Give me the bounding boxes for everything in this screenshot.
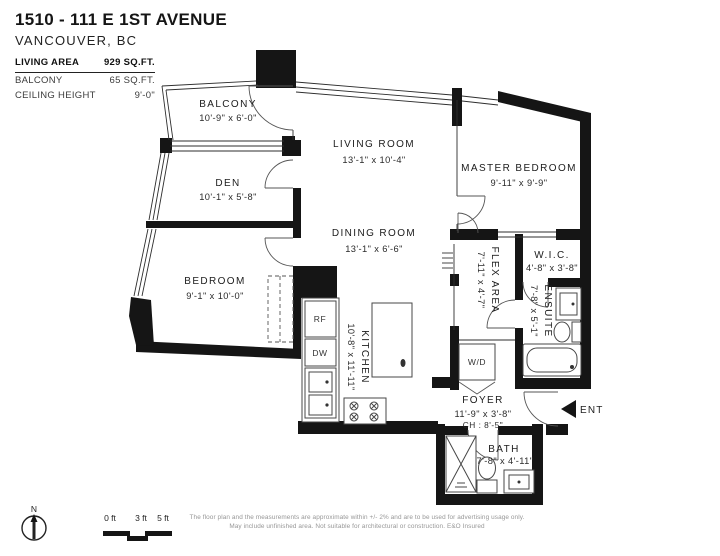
bath-toilet-tank-icon bbox=[477, 480, 497, 493]
entry-door bbox=[524, 392, 558, 426]
room-label-living: LIVING ROOM bbox=[333, 139, 415, 150]
scale-tick-3: 3 ft bbox=[135, 513, 147, 523]
window-master-top bbox=[462, 96, 498, 105]
wall-foyer-bath-right bbox=[498, 426, 534, 435]
room-dims-kitchen: 10'-8" x 11'-11" bbox=[346, 323, 356, 390]
room-label-kitchen: KITCHEN bbox=[359, 330, 370, 384]
wall-dining-kitchen-corner bbox=[301, 266, 337, 298]
room-dims-balcony: 10'-9" x 6'-0" bbox=[199, 113, 257, 123]
room-dims-bedroom: 9'-1" x 10'-0" bbox=[186, 291, 244, 301]
room-dims-wic: 4'-8" x 3'-8" bbox=[526, 263, 578, 273]
north-compass: N bbox=[22, 504, 46, 540]
scale-tick-5: 5 ft bbox=[157, 513, 169, 523]
room-label-master: MASTER BEDROOM bbox=[461, 163, 577, 174]
entry-marker: ENT bbox=[561, 400, 604, 418]
room-label-dining: DINING ROOM bbox=[332, 228, 416, 239]
master-closet-slider bbox=[498, 232, 556, 237]
scale-tick-0: 0 ft bbox=[104, 513, 116, 523]
bedroom-closet bbox=[268, 276, 293, 342]
wall-bedroom-bottom bbox=[136, 341, 301, 359]
wall-flex-ensuite-lower bbox=[515, 328, 523, 389]
wall-bath-bottom bbox=[436, 494, 543, 505]
wall-den-bedroom-divider bbox=[146, 221, 295, 228]
room-label-flex: FLEX AREA bbox=[489, 246, 500, 313]
bedroom-door bbox=[265, 238, 293, 266]
wall-wd-left bbox=[450, 326, 459, 390]
window-den-left bbox=[149, 153, 169, 220]
wall-left-seg3 bbox=[293, 266, 301, 358]
room-label-ensuite: ENSUITE bbox=[542, 284, 553, 337]
room-label-den: DEN bbox=[215, 178, 240, 189]
kitchen-island bbox=[372, 303, 412, 377]
room-label-wic: W.I.C. bbox=[534, 250, 570, 261]
faucet-icon bbox=[325, 380, 328, 383]
wall-flex-block bbox=[450, 274, 459, 286]
wall-right bbox=[580, 113, 591, 389]
wall-bath-left bbox=[436, 424, 445, 505]
window-living-top bbox=[296, 82, 452, 105]
bathtub-icon bbox=[523, 344, 581, 376]
scale-segment bbox=[145, 531, 172, 536]
room-label-bath: BATH bbox=[488, 444, 520, 455]
kitchen-sink-unit bbox=[305, 368, 336, 418]
master-door bbox=[457, 196, 485, 224]
window-den-top bbox=[170, 141, 284, 151]
fridge-label: RF bbox=[314, 314, 327, 324]
faucet-icon bbox=[325, 403, 328, 406]
room-dims-dining: 13'-1" x 6'-6" bbox=[345, 244, 403, 254]
room-dims-flex: 7'-11" x 4'-7" bbox=[476, 252, 486, 309]
wall-flex-ensuite-upper bbox=[515, 234, 523, 300]
wall-sw-corner bbox=[129, 297, 154, 346]
dishwasher-label: DW bbox=[312, 348, 327, 358]
wd-bifold-door bbox=[459, 382, 495, 394]
disclaimer-line-1: The floor plan and the measurements are … bbox=[190, 514, 525, 521]
wall-top-column bbox=[256, 50, 296, 88]
washer-dryer-label: W/D bbox=[468, 357, 486, 367]
floor-plan: BALCONY 10'-9" x 6'-0" DEN 10'-1" x 5'-8… bbox=[0, 0, 720, 556]
ensuite-toilet-icon bbox=[554, 322, 570, 342]
ensuite-toilet-tank-icon bbox=[572, 322, 581, 342]
room-dims-foyer: 11'-9" x 3'-8" bbox=[455, 409, 512, 419]
disclaimer-line-2: May include unfinished area. Not suitabl… bbox=[229, 523, 485, 530]
room-dims-master: 9'-11" x 9'-9" bbox=[491, 178, 548, 188]
room-dims-living: 13'-1" x 10'-4" bbox=[342, 155, 405, 165]
entry-label: ENT bbox=[580, 405, 604, 416]
den-door bbox=[265, 160, 293, 188]
compass-needle-tip-icon bbox=[31, 514, 38, 522]
stove-icon bbox=[344, 398, 386, 424]
scale-segment bbox=[103, 531, 130, 536]
wall-master-top bbox=[498, 91, 591, 124]
entry-arrow-icon bbox=[561, 400, 576, 418]
wall-left-seg2 bbox=[293, 188, 301, 238]
room-dims-den: 10'-1" x 5'-8" bbox=[199, 192, 257, 202]
disclaimer: The floor plan and the measurements are … bbox=[190, 514, 525, 530]
room-dims-bath: 7'-8" x 4'-11" bbox=[477, 456, 534, 466]
scale-segment bbox=[127, 536, 148, 541]
bathtub-faucet-icon bbox=[570, 365, 574, 369]
island-faucet-icon bbox=[401, 359, 406, 367]
wall-master-bottom-right bbox=[556, 229, 582, 240]
scale-bar: 0 ft 3 ft 5 ft bbox=[103, 513, 172, 541]
room-label-foyer: FOYER bbox=[462, 395, 503, 406]
room-label-balcony: BALCONY bbox=[199, 99, 257, 110]
room-label-bedroom: BEDROOM bbox=[184, 276, 245, 287]
balcony-railing bbox=[162, 81, 258, 140]
compass-north-label: N bbox=[31, 504, 37, 514]
room-ceiling-foyer: CH : 8'-5" bbox=[463, 420, 503, 430]
window-bedroom-left bbox=[134, 229, 156, 296]
room-dims-ensuite: 7'-8" x 5'-1" bbox=[529, 285, 539, 337]
bath-faucet-icon bbox=[518, 481, 521, 484]
wall-ensuite-bottom bbox=[518, 378, 591, 389]
radiator-icon bbox=[442, 253, 453, 268]
ensuite-faucet-icon bbox=[572, 303, 575, 306]
